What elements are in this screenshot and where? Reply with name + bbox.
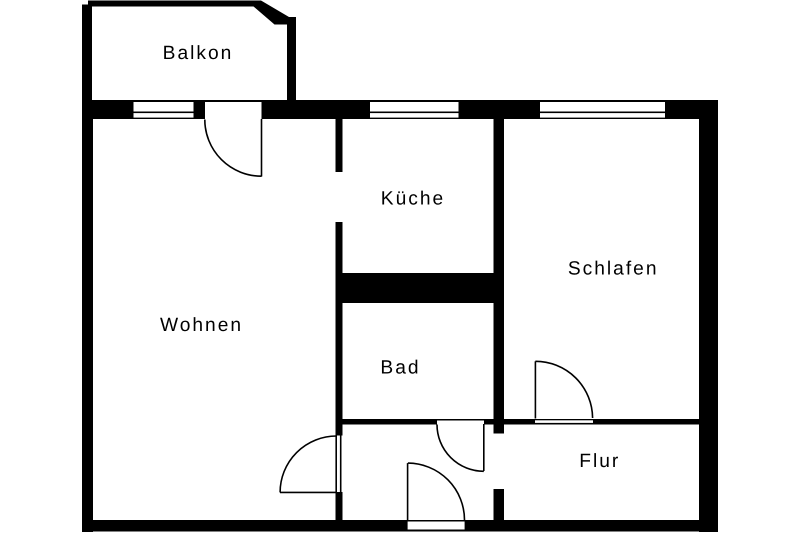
svg-text:Bad: Bad: [380, 357, 420, 378]
svg-text:Wohnen: Wohnen: [160, 315, 243, 336]
svg-text:Küche: Küche: [381, 189, 445, 210]
svg-text:Balkon: Balkon: [163, 43, 234, 64]
svg-text:Schlafen: Schlafen: [568, 258, 659, 279]
svg-text:Flur: Flur: [579, 451, 620, 472]
